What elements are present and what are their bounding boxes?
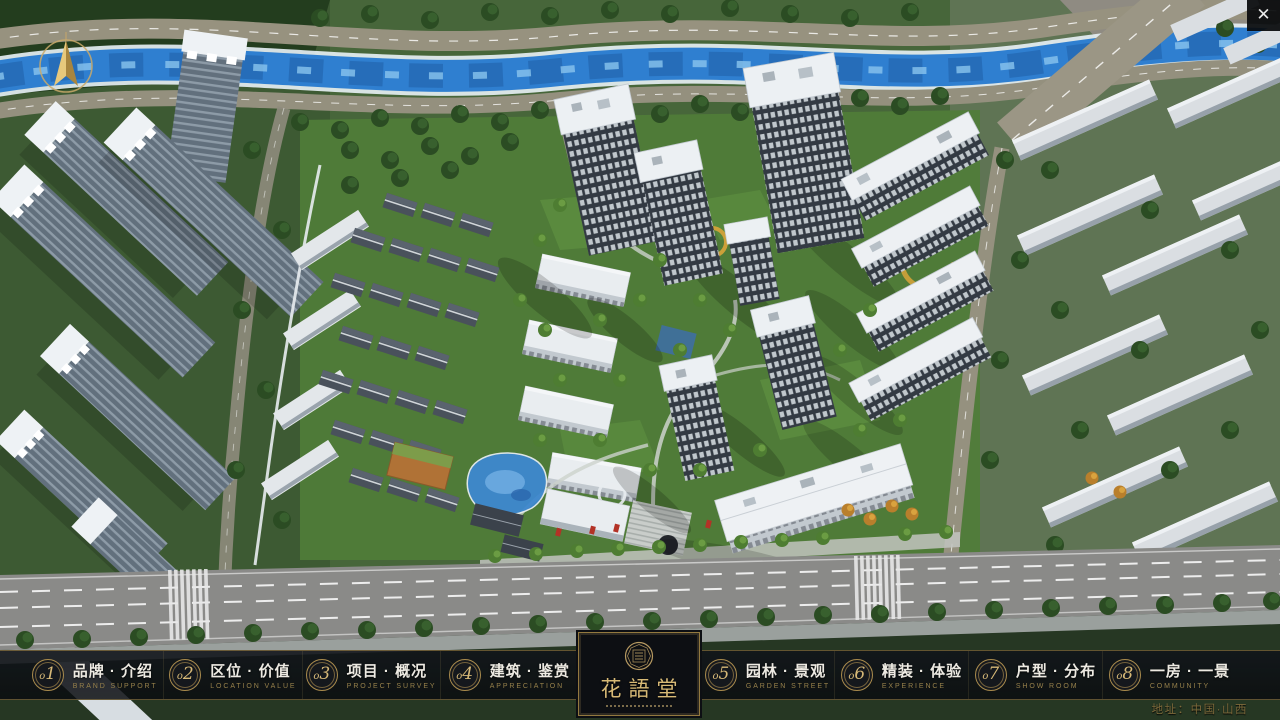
address-text: 地址：中国·山西 — [1152, 701, 1248, 717]
nav-item-label: 精装 · 体验 — [882, 660, 962, 681]
logo-subtitle — [606, 705, 672, 708]
nav-item-architecture[interactable]: o4 建筑 · 鉴赏APPRECIATION — [440, 651, 578, 699]
nav-item-sublabel: GARDEN STREET — [746, 683, 830, 690]
nav-item-sublabel: COMMUNITY — [1150, 683, 1210, 690]
nav-item-label: 区位 · 价值 — [210, 660, 290, 681]
nav-item-sublabel: PROJECT SURVEY — [347, 683, 437, 690]
nav-item-badge: o2 — [169, 659, 201, 691]
nav-item-project-overview[interactable]: o3 项目 · 概况PROJECT SURVEY — [302, 651, 440, 699]
masterplan-render[interactable] — [0, 0, 1280, 720]
nav-item-sublabel: BRAND SUPPORT — [73, 683, 158, 690]
nav-item-sublabel: EXPERIENCE — [882, 683, 946, 690]
nav-item-label: 一房 · 一景 — [1150, 660, 1230, 681]
nav-item-location-value[interactable]: o2 区位 · 价值LOCATION VALUE — [163, 651, 301, 699]
nav-item-badge: o6 — [841, 659, 873, 691]
nav-item-brand-intro[interactable]: o1 品牌 · 介绍BRAND SUPPORT — [26, 651, 163, 699]
nav-item-room-view[interactable]: o8 一房 · 一景COMMUNITY — [1102, 651, 1236, 699]
nav-item-garden-landscape[interactable]: o5 园林 · 景观GARDEN STREET — [700, 651, 834, 699]
nav-item-badge: o8 — [1109, 659, 1141, 691]
nav-item-label: 户型 · 分布 — [1016, 660, 1096, 681]
nav-item-badge: o7 — [975, 659, 1007, 691]
nav-item-sublabel: APPRECIATION — [490, 683, 564, 690]
nav-item-sublabel: LOCATION VALUE — [210, 683, 296, 690]
nav-item-label: 品牌 · 介绍 — [73, 660, 153, 681]
brand-logo-panel: 花語堂 — [578, 632, 700, 716]
nav-item-interior-experience[interactable]: o6 精装 · 体验EXPERIENCE — [834, 651, 968, 699]
nav-item-label: 项目 · 概况 — [347, 660, 427, 681]
logo-emblem-icon — [624, 641, 654, 671]
compass-icon — [33, 28, 99, 98]
nav-item-badge: o4 — [449, 659, 481, 691]
nav-item-floorplan-distribution[interactable]: o7 户型 · 分布SHOW ROOM — [968, 651, 1102, 699]
nav-item-sublabel: SHOW ROOM — [1016, 683, 1079, 690]
app-window: ✕ o1 品牌 · 介绍BRAND SUPPORT o2 区位 · 价值LOCA… — [0, 0, 1280, 720]
nav-item-label: 建筑 · 鉴赏 — [490, 660, 570, 681]
nav-item-label: 园林 · 景观 — [746, 660, 826, 681]
nav-item-badge: o5 — [705, 659, 737, 691]
close-button[interactable]: ✕ — [1247, 0, 1280, 31]
nav-item-badge: o3 — [306, 659, 338, 691]
brand-logo-title: 花語堂 — [594, 673, 685, 703]
nav-item-badge: o1 — [32, 659, 64, 691]
